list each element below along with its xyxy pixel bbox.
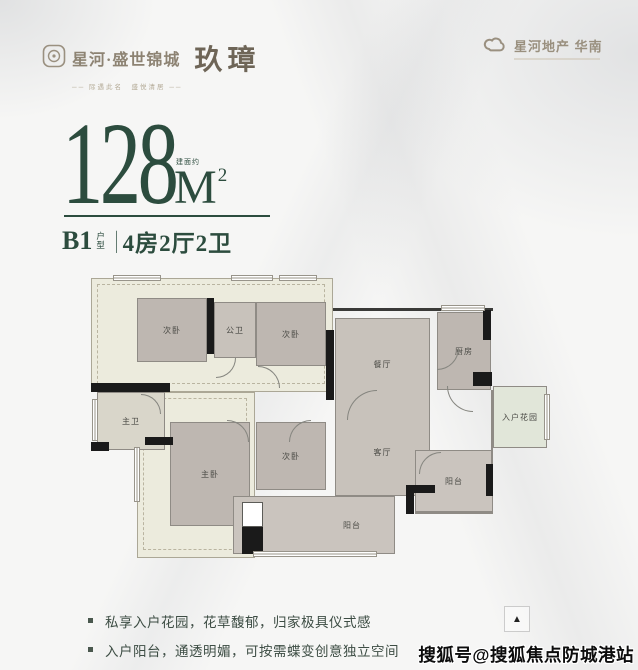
feature-list: 私享入户花园，花草馥郁，归家极具仪式感 入户阳台，通透明媚，可按需蝶变创意独立空…	[88, 606, 399, 664]
developer-subtext	[514, 58, 600, 60]
feature-item: 入户阳台，通透明媚，可按需蝶变创意独立空间	[88, 635, 399, 664]
bullet-square-icon	[88, 618, 93, 623]
window	[544, 394, 550, 440]
brand-tagline: ── 际遇此名 盛悦清居 ──	[72, 81, 260, 91]
room-bedroom-2a: 次卧	[137, 298, 207, 362]
developer-name: 星河地产	[514, 39, 570, 54]
headline: 128 建面约 M2 B1 户 型 | 4房2厅2卫	[62, 118, 270, 258]
room-bedroom-2b: 次卧	[256, 302, 326, 366]
wall-segment	[242, 527, 263, 554]
door-arc	[447, 386, 473, 412]
wall-line	[415, 512, 493, 514]
poster-canvas: 星河·盛世锦城 玖璋 ── 际遇此名 盛悦清居 ── 星河地产 华南 128 建…	[0, 0, 638, 670]
project-emblem: 玖璋	[194, 38, 260, 78]
wall-segment	[483, 310, 491, 340]
wall-segment	[207, 298, 214, 354]
feature-item: 私享入户花园，花草馥郁，归家极具仪式感	[88, 606, 399, 635]
wall-segment	[406, 485, 414, 514]
window	[253, 551, 377, 557]
room-dining-label: 餐厅	[336, 359, 429, 370]
window	[441, 305, 485, 311]
area-unit-sup: 2	[218, 165, 228, 186]
plan-code: B1	[62, 226, 92, 256]
window	[92, 399, 98, 441]
watermark: 搜狐号@搜狐焦点防城港站	[418, 642, 634, 667]
wall-line	[491, 390, 493, 466]
developer-region: 华南	[575, 39, 603, 54]
area-unit: M	[174, 161, 217, 214]
wall-segment	[486, 464, 493, 496]
wall-segment	[326, 330, 334, 400]
plan-note: 户 型	[96, 232, 105, 251]
room-bath-public: 公卫	[214, 302, 256, 358]
wall-segment	[91, 383, 170, 392]
compass-north-icon: ▲	[504, 606, 530, 632]
window	[134, 447, 140, 502]
wall-segment	[91, 442, 109, 451]
window	[113, 275, 161, 281]
cloud-icon	[482, 36, 508, 59]
wall-segment	[473, 372, 492, 386]
window	[279, 275, 317, 281]
area-note: 建面约	[176, 157, 200, 167]
wall-box	[242, 502, 263, 527]
plan-separator: |	[115, 228, 118, 255]
brand-seal-icon	[42, 44, 66, 73]
room-entry-garden: 入户花园	[493, 386, 547, 448]
brand-logo: 星河·盛世锦城 玖璋 ── 际遇此名 盛悦清居 ──	[42, 38, 260, 91]
bullet-square-icon	[88, 647, 93, 652]
developer-logo: 星河地产 华南	[482, 36, 603, 60]
project-name: 星河·盛世锦城	[72, 46, 180, 70]
area-number: 128	[62, 118, 175, 210]
wall-segment	[145, 437, 173, 445]
plan-layout: 4房2厅2卫	[123, 224, 233, 258]
floorplan-diagram: 次卧 公卫 次卧 餐厅 客厅 厨房 入户花园 阳台 次卧 主卧 主卫	[85, 272, 560, 567]
window	[231, 275, 273, 281]
